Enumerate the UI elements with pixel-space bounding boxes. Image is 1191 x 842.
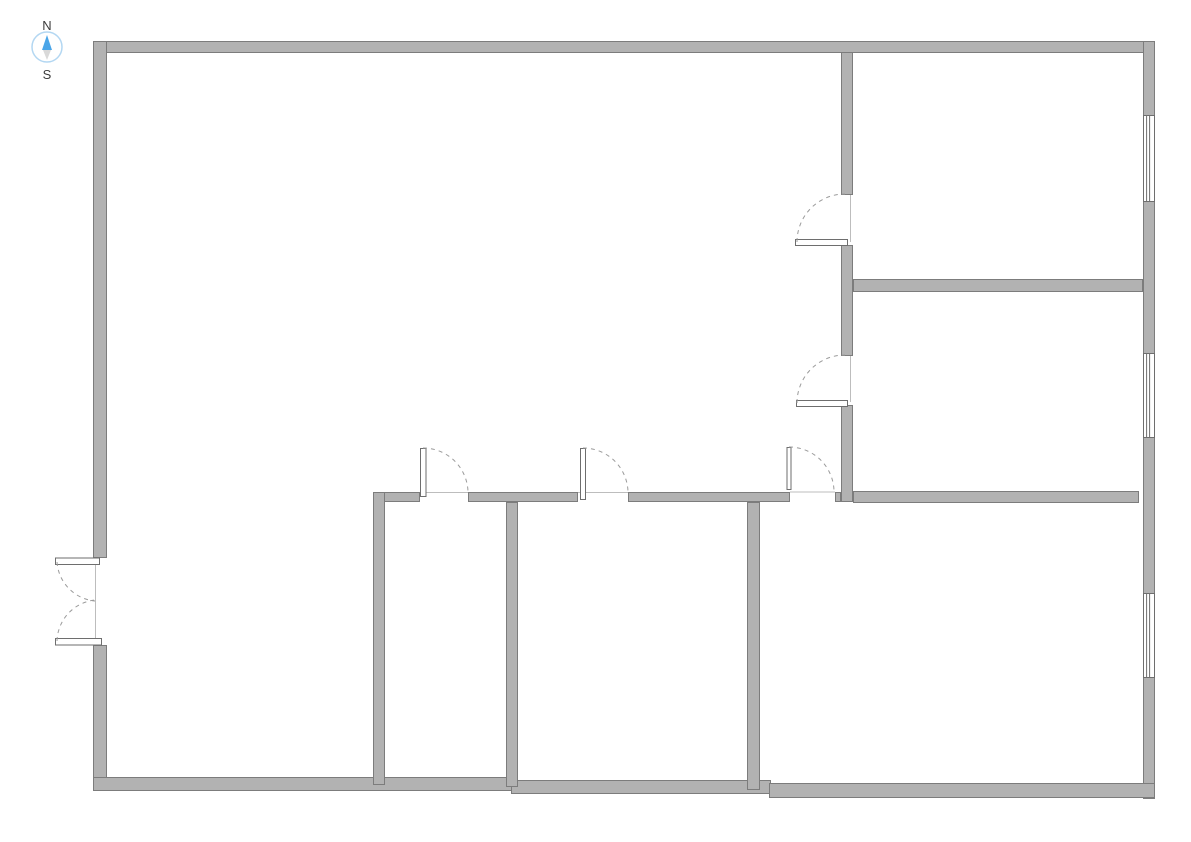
door-swing-room-b — [583, 448, 628, 492]
entry-door-swing-top — [57, 562, 95, 601]
corridor-wall-middle — [842, 246, 853, 356]
outer-wall-bottom-center — [512, 781, 771, 794]
compass-rose: N S — [30, 6, 70, 86]
small-room-divider-wall — [507, 503, 518, 787]
outer-wall-bottom-west — [94, 778, 513, 791]
compass-south-label: S — [43, 67, 52, 82]
door-leaf-room-b — [581, 449, 586, 500]
south-rooms-wall-b — [469, 493, 578, 502]
window-east-room — [1144, 354, 1155, 438]
entry-door-leaf-top — [56, 558, 100, 565]
window-southeast-room — [1144, 594, 1155, 678]
east-rooms-divider-wall — [854, 280, 1143, 292]
door-leaf-room-a — [421, 449, 427, 497]
door-swing-corridor-upper — [797, 194, 845, 242]
outer-wall-top — [94, 42, 1155, 53]
floor-plan-svg — [0, 0, 1191, 842]
south-rooms-wall-d — [836, 493, 841, 502]
window-northeast-room — [1144, 116, 1155, 202]
door-leaf-corridor-upper — [796, 240, 848, 246]
door-leaf-room-c — [787, 448, 791, 490]
outer-wall-bottom-east — [770, 784, 1155, 798]
southeast-room-wall-west — [748, 503, 760, 790]
corridor-wall-lower — [842, 406, 853, 502]
small-room-wall-west — [374, 493, 385, 785]
south-rooms-wall-east — [854, 492, 1139, 503]
compass-north-label: N — [42, 18, 51, 33]
south-rooms-wall-c — [629, 493, 790, 502]
outer-wall-left-lower — [94, 646, 107, 791]
corridor-wall-upper — [842, 53, 853, 195]
floor-plan-page: N S — [0, 0, 1191, 842]
entry-door-leaf-bottom — [56, 639, 102, 646]
outer-wall-left-upper — [94, 42, 107, 558]
door-swing-room-a — [423, 448, 468, 492]
door-swing-room-c — [789, 447, 834, 491]
door-leaf-corridor-lower — [797, 401, 848, 407]
door-swing-corridor-lower — [797, 355, 845, 403]
entry-door-swing-bottom — [57, 600, 95, 641]
